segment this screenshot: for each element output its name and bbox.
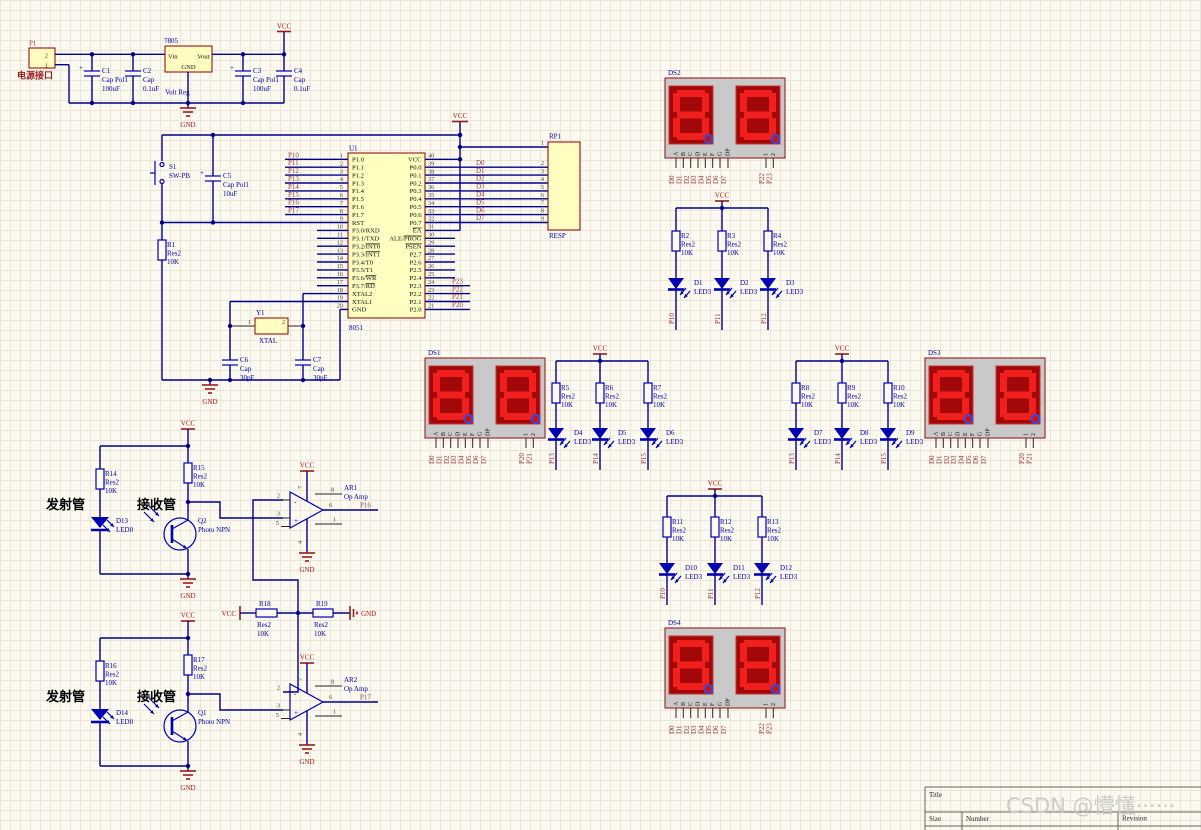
pin-number: 18 [337,287,343,294]
pin-number: 34 [428,200,435,207]
pin-name: XTAL1 [352,299,372,306]
junction-dot [241,52,245,56]
resistor-ref: R4 [773,232,782,240]
segment [677,133,705,140]
pin-number: 5 [541,184,544,191]
net-label: D0 [476,159,485,167]
junction-dot [211,220,215,224]
respack-ref: RP1 [549,133,562,141]
pin-name: VCC [408,157,422,164]
net-label: P17 [360,694,371,702]
resistor-body [884,383,892,403]
display-pin-letter: A [434,431,440,436]
decimal-point-icon [705,685,713,693]
pin-name: EA [413,228,422,235]
capacitor-value: 100uF [253,85,271,93]
net-label: D6 [472,455,480,464]
capacitor-value: 30pF [240,374,255,382]
decimal-point-icon [965,415,973,423]
crystal-ref: Y1 [256,309,265,317]
segment [677,662,705,669]
resistor-ref: R1 [167,241,176,249]
led-type: LED3 [786,288,804,296]
capacitor-ref: C5 [223,172,232,180]
net-label: D7 [720,725,728,734]
segment [677,112,705,119]
resistor-body [758,517,766,537]
vcc-label: VCC [300,654,315,662]
resistor-value: 10K [653,401,665,409]
led-ref: D1 [694,279,703,287]
resistor-ref: R5 [561,384,570,392]
segment [1000,373,1007,392]
display-pin-letter: A [674,151,680,156]
vcc-label: VCC [181,420,196,428]
segment [933,373,940,392]
capacitor-ref: C4 [294,67,303,75]
resistor-ref: R12 [720,518,732,526]
resistor-value: 10K [727,249,739,257]
resistor-type: Res2 [105,671,120,679]
net-label: P20 [452,301,463,309]
gnd-label: GND [299,758,314,766]
opamp-ref: AR2 [344,676,358,684]
resistor-ref: R14 [105,470,117,478]
led-type: LED3 [733,573,751,581]
led-ref: D12 [780,564,793,572]
resistor-type: Res2 [847,393,862,401]
segment [740,93,747,112]
led-icon [640,428,656,439]
pin-name: P1.3 [352,180,365,187]
resistor-body [792,383,800,403]
segment [740,643,747,662]
resistor-body [552,383,560,403]
emitter-label: 发射管 [45,497,85,513]
led-ref: D9 [906,429,915,437]
capacitor-value: 0.1uF [143,85,159,93]
resistor-body [313,609,333,617]
pin-name: XTAL2 [352,291,372,298]
resistor-type: Res2 [314,621,329,629]
net-label: D6 [712,725,720,734]
led-ref: D3 [786,279,795,287]
led-ref: D14 [116,709,129,717]
pin-number: 35 [428,192,434,199]
pin-name: P0.5 [410,204,423,211]
emitter-label: 发射管 [45,689,85,705]
net-label: P23 [766,723,774,734]
display-pin-letter: C [688,152,694,156]
capacitor-type: Cap [240,365,252,373]
led-ref: D4 [574,429,583,437]
net-label: P17 [288,207,299,215]
resistor-type: Res2 [653,393,668,401]
resistor-body [764,231,772,251]
resistor-value: 10K [105,679,117,687]
vreg-pin: GND [181,64,196,71]
display-pin-letter: B [441,432,447,436]
led-type: LED3 [860,438,878,446]
pin-number: 16 [337,271,343,278]
segment [937,370,965,377]
switch-contact-icon [160,180,164,184]
pin-name: P3.1/TXD [352,236,380,243]
receiver-label: 接收管 [137,497,176,513]
pin-number: 2 [45,53,48,60]
pin-number: 8 [541,208,544,215]
pin-name: P1.1 [352,165,364,172]
junction-dot [458,157,462,161]
pin-number: 1 [248,319,251,326]
pin-number: 3 [277,511,280,518]
display-pin-letter: B [941,432,947,436]
led-icon [91,517,109,528]
switch-value: SW-PB [169,172,190,180]
pin-number: 23 [428,287,434,294]
pin-name: P3.4/T0 [352,259,374,266]
transistor-ref: Q1 [198,709,207,717]
net-label: P10 [659,588,667,599]
pin-number: 30 [428,232,434,239]
pin-number: 1 [45,63,48,70]
led-type: LED3 [780,573,798,581]
display-pin-letter: B [681,152,687,156]
plus-mark: + [79,64,83,72]
segment [744,662,772,669]
transistor-body-icon [164,518,196,550]
display-pin-letter: B [681,702,687,706]
display-pin-letter: DP [726,698,732,706]
wire [188,694,283,710]
decimal-point-icon [1032,415,1040,423]
resistor-ref: R10 [893,384,905,392]
display-pin-letter: C [948,432,954,436]
vreg-pin: Vout [197,54,210,61]
led-type: LED3 [666,438,684,446]
resistor-value: 10K [193,481,205,489]
resistor-type: Res2 [605,393,620,401]
decimal-point-icon [705,135,713,143]
segment [677,683,705,690]
led-type: LED3 [814,438,832,446]
capacitor-ref: C2 [143,67,152,75]
display-ref: DS3 [928,349,941,357]
led-ref: D8 [860,429,869,437]
pin-number: 31 [428,224,434,231]
pin-number: 22 [428,295,434,302]
pin-name: P3.0/RXD [352,228,380,235]
display-pin-letter: G [718,151,724,156]
vcc-label: VCC [181,612,196,620]
display-ref: DS4 [668,619,681,627]
pin-number: 1 [340,153,343,160]
junction-dot [228,324,232,328]
capacitor-ref: C6 [240,356,249,364]
pin-name: P2.3 [410,283,423,290]
junction-dot [458,133,462,137]
resistor-value: 10K [801,401,813,409]
led-ref: D11 [733,564,745,572]
pin-number: 2 [340,160,343,167]
segment [740,668,747,687]
junction-dot [301,324,305,328]
net-label: D6 [712,175,720,184]
pin-name: P3.7/RD [352,283,375,290]
titleblock-number-label: Number [966,815,990,823]
pin-name: P1.2 [352,172,364,179]
pin-number: 38 [428,168,434,175]
gnd-label: GND [180,121,195,129]
display-pin-letter: E [703,152,709,156]
display-pin-letter: DP [986,428,992,436]
segment [702,93,709,112]
segment [673,93,680,112]
display-ref: DS1 [428,349,441,357]
resistor-value: 10K [847,401,859,409]
segment [702,643,709,662]
transistor-collector [172,520,188,529]
led-type: LED3 [740,288,758,296]
pin-number: 33 [428,208,434,215]
resistor-value: 10K [773,249,785,257]
decimal-point-icon [772,685,780,693]
pin-name: P2.5 [410,267,423,274]
net-label: P15 [640,453,648,464]
pin-name: P3.6/WR [352,275,377,282]
segment [769,643,776,662]
pin-number: 36 [428,184,434,191]
pin-number: 15 [337,263,343,270]
segment [1004,413,1032,420]
vcc-label: VCC [277,23,292,31]
power-connector-label: 电源接口 [17,70,53,82]
resistor-value: 10K [893,401,905,409]
segment [962,373,969,392]
pin-number: 27 [428,255,434,262]
net-label: P12 [760,313,768,324]
resistor-ref: R13 [767,518,779,526]
pin-number: 17 [337,279,343,286]
pin-number: 4 [340,176,344,183]
segment [1004,370,1032,377]
resistor-body [644,383,652,403]
junction-dot [131,101,135,105]
pin-number: 4 [297,540,304,544]
led-icon [754,563,770,574]
led-icon [880,428,896,439]
resistor-value: 10K [605,401,617,409]
led-type: LED3 [574,438,592,446]
resistor-ref: R11 [672,518,684,526]
resistor-body [838,383,846,403]
pin-name: P2.7 [410,251,423,258]
pin-number: 7 [297,486,304,489]
transistor-ref: Q2 [198,517,207,525]
wire [253,500,298,692]
pin-name: P2.2 [410,291,422,298]
led-icon [788,428,804,439]
resistor-value: 10K [672,535,684,543]
pin-number: 40 [428,153,434,160]
led-icon [668,278,684,289]
resistor-value: 10K [314,630,326,638]
resistor-type: Res2 [801,393,816,401]
pin-number: 4 [541,176,545,183]
capacitor-type: Cap [143,76,155,84]
pin-number: 1 [333,709,336,716]
segment [677,640,705,647]
net-label: D1 [476,167,485,175]
gnd-label: GND [180,592,195,600]
capacitor-ref: C7 [313,356,322,364]
resistor-type: Res2 [681,241,696,249]
opamp-plus: + [294,709,298,717]
net-label: D7 [720,175,728,184]
decimal-point-icon [772,135,780,143]
net-label: P21 [452,293,463,301]
display-pin-letter: 2 [1031,433,1037,436]
pin-number: 25 [428,271,434,278]
pin-number: 5 [276,520,279,527]
resistor-ref: R3 [727,232,736,240]
pin-number: 2 [282,319,285,326]
display-pin-letter: D [456,431,462,436]
decimal-point-icon [532,415,540,423]
resistor-ref: R18 [259,600,271,608]
net-label: P13 [788,453,796,464]
net-label: D3 [476,183,485,191]
opamp-minus: - [294,690,297,698]
net-label: P15 [288,191,299,199]
resistor-body [256,609,277,617]
pin-number: 29 [428,239,434,246]
pin-number: 21 [428,303,434,310]
led-type: LED3 [685,573,703,581]
pin-number: 28 [428,247,434,254]
led-icon [714,278,730,289]
vcc-label: VCC [708,480,723,488]
opamp-minus: - [294,498,297,506]
resistor-value: 10K [105,487,117,495]
led-icon [834,428,850,439]
led-type: LED3 [906,438,924,446]
pin-number: 5 [276,712,279,719]
plus-mark: + [200,169,204,177]
crystal-value: XTAL [259,337,277,345]
pin-name: P3.2/INT0 [352,244,381,251]
segment [937,413,965,420]
led-icon [548,428,564,439]
resistor-value: 10K [720,535,732,543]
capacitor-type: Cap Pol1 [223,181,249,189]
segment [740,118,747,137]
pin-number: 8 [331,679,334,686]
net-label: D6 [476,206,485,214]
display-pin-letter: DP [726,148,732,156]
pin-number: 3 [340,168,343,175]
pin-name: P1.0 [352,157,365,164]
net-label: P14 [592,453,600,464]
segment [504,392,532,399]
capacitor-type: Cap Pol1 [102,76,128,84]
pin-name: P0.7 [410,220,423,227]
pin-number: 12 [337,239,343,246]
led-ref: D7 [814,429,823,437]
led-type: LED3 [618,438,636,446]
display-pin-letter: E [463,432,469,436]
segment [673,118,680,137]
decimal-point-icon [465,415,473,423]
connector-ref: P1 [29,40,37,48]
display-ref: DS2 [668,69,681,77]
net-label: P11 [288,159,299,167]
resistor-ref: R8 [801,384,810,392]
segment [529,373,536,392]
net-label: P11 [714,313,722,324]
pin-name: P2.4 [410,275,423,282]
display-pin-letter: D [696,701,702,706]
pin-number: 4 [297,732,304,736]
pin-number: 37 [428,176,434,183]
vcc-label: VCC [222,610,237,618]
pin-number: 2 [277,685,280,692]
opamp-type: Op Amp [344,493,368,501]
led-ref: D5 [618,429,627,437]
net-label: D7 [480,455,488,464]
plus-mark: + [230,64,234,72]
resistor-ref: R17 [193,656,205,664]
resistor-type: Res2 [767,527,782,535]
net-label: D7 [980,455,988,464]
pin-name: P0.3 [410,188,423,195]
net-label: P13 [288,175,299,183]
pin-number: 6 [329,694,332,701]
display-pin-letter: 2 [771,703,777,706]
segment [744,133,772,140]
resistor-ref: R16 [105,662,117,670]
capacitor-ref: C3 [253,67,262,75]
resistor-type: Res2 [167,250,182,258]
net-label: D7 [476,214,485,222]
pin-number: 24 [428,279,435,286]
led-type: LED3 [694,288,712,296]
pin-number: 1 [541,140,544,147]
watermark: CSDN @懵懂······ [1006,794,1176,818]
net-label: P11 [707,588,715,599]
pin-number: 2 [541,160,544,167]
pin-name: ALE/PROG [389,236,421,243]
led-icon [91,709,109,720]
resistor-body [184,463,192,483]
capacitor-type: Cap [294,76,306,84]
resistor-body [711,517,719,537]
vcc-label: VCC [593,345,608,353]
vreg-pin: Vin [168,54,178,61]
pin-number: 6 [329,502,332,509]
resistor-type: Res2 [893,393,908,401]
resistor-value: 10K [767,535,779,543]
led-icon [707,563,723,574]
capacitor-type: Cap [313,365,325,373]
pin-name: P2.1 [410,299,422,306]
display-pin-letter: 2 [771,153,777,156]
resistor-ref: R15 [193,464,205,472]
net-label: P12 [754,588,762,599]
pin-name: P3.5/T1 [352,267,373,274]
net-label: P13 [548,453,556,464]
net-label: D6 [972,455,980,464]
